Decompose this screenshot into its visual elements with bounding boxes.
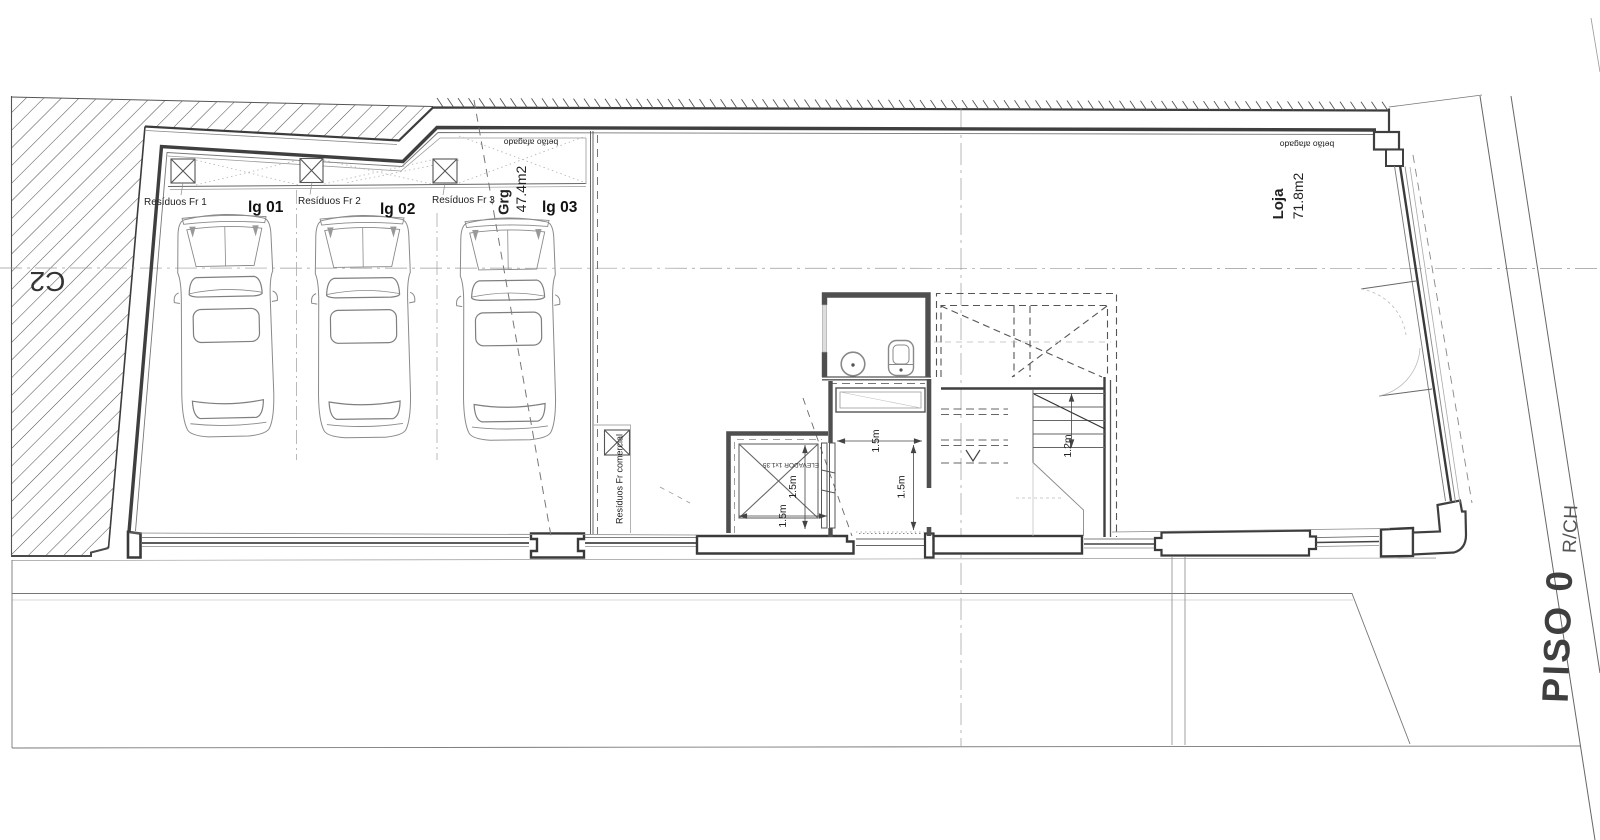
svg-text:1.5m: 1.5m bbox=[777, 504, 789, 528]
svg-text:R/CH: R/CH bbox=[1560, 504, 1583, 553]
svg-text:Grg: Grg bbox=[497, 189, 513, 215]
svg-text:1.5m: 1.5m bbox=[787, 475, 799, 499]
svg-text:1.5m: 1.5m bbox=[896, 475, 908, 499]
svg-text:lg 01: lg 01 bbox=[248, 199, 284, 216]
svg-text:1.2m: 1.2m bbox=[1062, 434, 1074, 458]
svg-text:ELEVADOR 1x1.35: ELEVADOR 1x1.35 bbox=[762, 461, 819, 468]
svg-text:1.5m: 1.5m bbox=[870, 429, 882, 453]
svg-text:PISO 0: PISO 0 bbox=[1535, 568, 1581, 704]
svg-text:Resíduos Fr 1: Resíduos Fr 1 bbox=[144, 197, 207, 208]
svg-text:71.8m2: 71.8m2 bbox=[1290, 172, 1306, 219]
svg-text:lg 03: lg 03 bbox=[542, 199, 578, 216]
svg-text:betão afagado: betão afagado bbox=[1280, 140, 1335, 150]
svg-text:Resíduos Fr comercial: Resíduos Fr comercial bbox=[615, 434, 625, 524]
svg-text:C2: C2 bbox=[30, 266, 66, 297]
svg-text:Resíduos Fr 3: Resíduos Fr 3 bbox=[432, 195, 495, 206]
svg-text:lg 02: lg 02 bbox=[380, 201, 415, 218]
svg-text:betão afagado: betão afagado bbox=[504, 138, 559, 148]
svg-text:Loja: Loja bbox=[1270, 188, 1287, 219]
svg-text:47.4m2: 47.4m2 bbox=[513, 165, 529, 212]
svg-text:Resíduos Fr 2: Resíduos Fr 2 bbox=[298, 196, 361, 207]
